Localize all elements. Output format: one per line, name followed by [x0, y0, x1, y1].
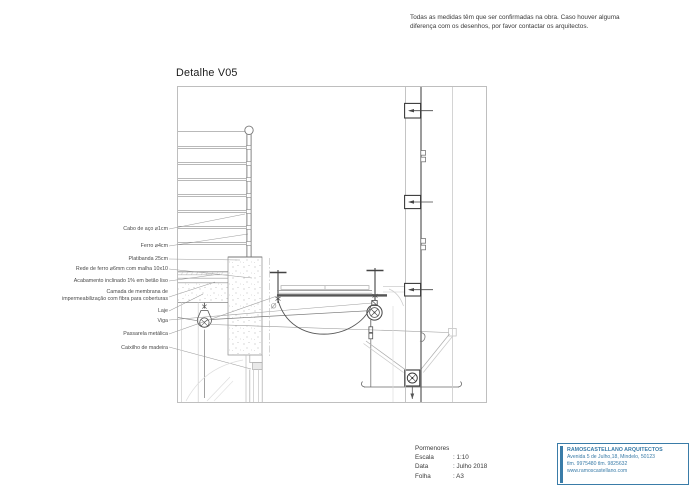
firm-stamp: RAMOSCASTELLANO ARQUITECTOS Avenida 5 de… [557, 443, 689, 485]
firm-phones: tlm. 9975480 tlm. 9825632 [567, 461, 663, 468]
label-caixilho: Caixilho de madeira [121, 345, 168, 352]
label-rede-de-ferro: Rede de ferro ⌀6mm com malha 10x10 [76, 266, 168, 273]
firm-address: Avenida 5 de Julho,18, Mindelo, 50123 [567, 454, 663, 461]
tensioner-box [405, 370, 420, 399]
label-ferro: Ferro ⌀4cm [141, 243, 168, 250]
detail-drawing-canvas [0, 0, 700, 495]
title-block-row-folha: Folha : A3 [415, 472, 487, 481]
brace [364, 328, 457, 372]
fixing-boxes [405, 103, 421, 296]
facade-column [393, 87, 453, 402]
label-cabo-de-aco: Cabo de aço ⌀1cm [123, 226, 168, 233]
label-passarela: Passarela metálica [123, 331, 168, 338]
label-membrana: Camada de membrana de impermeabilização … [62, 289, 168, 303]
firm-website: www.ramoscastellano.com [567, 468, 663, 475]
firm-name: RAMOSCASTELLANO ARQUITECTOS [567, 447, 663, 454]
title-block: Pormenores Escala : 1:10 Data : Julho 20… [415, 444, 487, 481]
title-block-row-data: Data : Julho 2018 [415, 462, 487, 471]
label-platibanda: Platibanda 25cm [129, 256, 168, 263]
cables [178, 300, 449, 334]
parapet [228, 257, 262, 355]
title-block-row-escala: Escala : 1:10 [415, 453, 487, 462]
drawing-sheet: Todas as medidas têm que ser confirmadas… [0, 0, 700, 495]
confirmation-note: Todas as medidas têm que ser confirmadas… [410, 13, 642, 32]
cable-slats [178, 132, 247, 245]
slab-layers [178, 272, 228, 402]
title-block-heading: Pormenores [415, 444, 487, 453]
catenary-cable [278, 300, 371, 334]
label-viga: Viga [157, 318, 168, 325]
page-title: Detalhe V05 [176, 67, 238, 79]
walkway [277, 286, 405, 306]
label-laje: Laje [158, 308, 168, 315]
firm-accent-bar [560, 446, 564, 483]
label-acabamento: Acabamento inclinado 1% em betão liso [74, 278, 168, 285]
